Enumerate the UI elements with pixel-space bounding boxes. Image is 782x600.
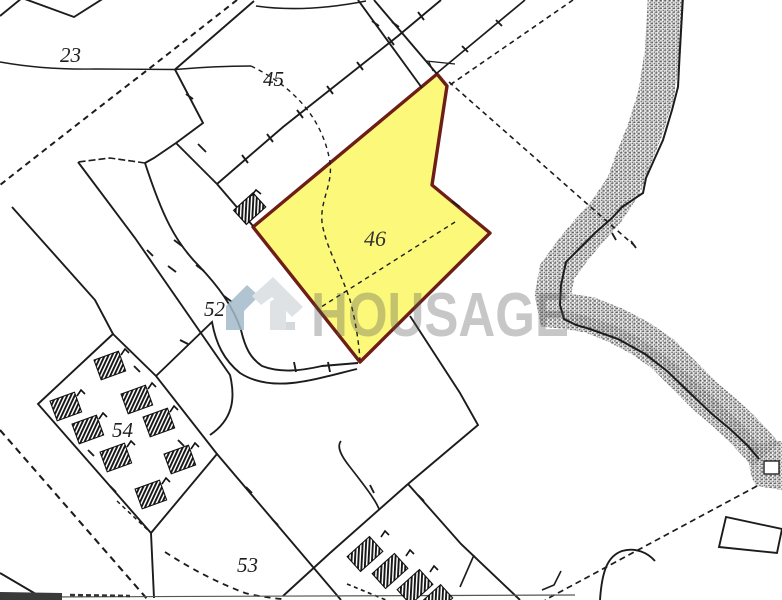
svg-text:52: 52 (204, 297, 226, 321)
svg-text:HOUSAGE: HOUSAGE (311, 281, 569, 350)
svg-text:23: 23 (60, 43, 81, 67)
svg-text:54: 54 (112, 418, 134, 442)
svg-text:45: 45 (263, 67, 284, 91)
svg-text:53: 53 (237, 553, 258, 577)
svg-text:46: 46 (364, 226, 386, 251)
